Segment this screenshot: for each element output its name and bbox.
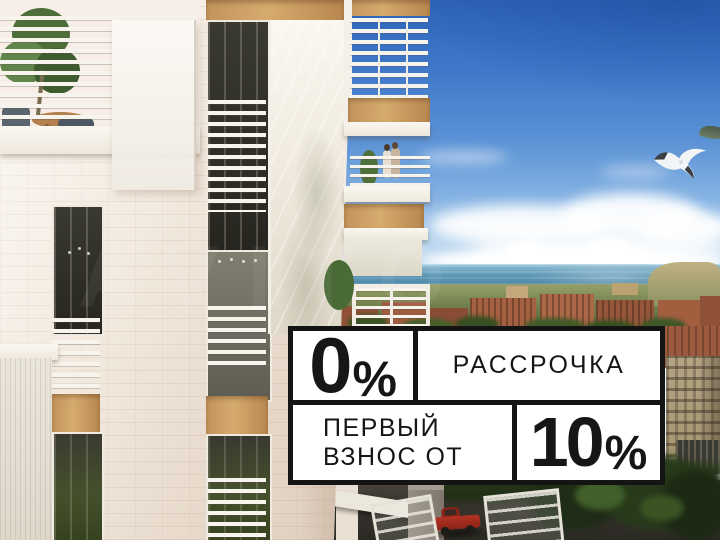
balcony-fascia [344, 122, 430, 136]
window-railing [208, 478, 266, 540]
person-head [392, 142, 398, 149]
cloud [505, 242, 545, 260]
balcony-fascia [344, 228, 428, 240]
cloud [418, 150, 508, 164]
glass-band [344, 240, 422, 276]
wood-panel [206, 396, 268, 436]
cloud [585, 238, 633, 258]
first-payment-label: ПЕРВЫЙ ВЗНОС ОТ [323, 414, 463, 471]
promo-row-first-payment: ПЕРВЫЙ ВЗНОС ОТ 10 % [293, 405, 660, 480]
first-payment-label-line2: ВЗНОС ОТ [323, 443, 463, 472]
first-payment-label-line1: ПЕРВЫЙ [323, 414, 463, 443]
window-railing [208, 306, 266, 368]
first-payment-percent-sign: % [605, 435, 648, 472]
pendant-light [254, 259, 257, 262]
protruding-balcony-people [344, 142, 430, 204]
truck-window [444, 509, 456, 516]
promo-cell-zero-percent: 0 % [293, 331, 413, 400]
roller-shade-panel [112, 20, 196, 190]
installment-rate-number: 0 [309, 335, 350, 396]
balcony-wood-ceiling [344, 0, 430, 16]
pendant-light [230, 258, 233, 261]
ten-percent-value: 10 % [530, 415, 648, 470]
installment-rate-percent-sign: % [352, 360, 396, 399]
installment-label: РАССРОЧКА [453, 351, 626, 380]
balcony-slab [344, 186, 430, 202]
promo-row-installment: 0 % РАССРОЧКА [293, 331, 660, 400]
promo-cell-first-payment-label: ПЕРВЫЙ ВЗНОС ОТ [293, 405, 512, 480]
promo-cell-ten-percent: 10 % [517, 405, 660, 480]
railing-post [378, 18, 380, 102]
protruding-balcony-upper [344, 0, 430, 140]
window [52, 205, 104, 336]
city-building [612, 283, 638, 295]
interior-light [68, 251, 71, 254]
railing-post [406, 18, 408, 102]
wood-header [206, 0, 344, 22]
pendant-light [218, 260, 221, 263]
promo-cell-installment-label: РАССРОЧКА [418, 331, 660, 400]
window-railing [52, 318, 100, 396]
person-head [384, 144, 390, 151]
pendant-light [242, 260, 245, 263]
city-building [506, 286, 528, 298]
first-payment-number: 10 [530, 415, 602, 470]
interior-light [87, 252, 90, 255]
wood-panel [52, 394, 100, 434]
window [52, 432, 104, 540]
balcony-screen [0, 358, 52, 540]
window-railing [208, 100, 266, 212]
tree-highlight [640, 495, 684, 521]
interior-light [78, 247, 81, 250]
real-estate-ad-image: AVITO 0 % РАССРОЧКА ПЕРВЫЙ ВЗНОС ОТ [0, 0, 720, 540]
pergola-frame [483, 488, 565, 540]
balcony-railing [350, 156, 430, 190]
shrub [324, 260, 354, 310]
protruding-balcony-lower [344, 204, 432, 334]
promo-overlay: 0 % РАССРОЧКА ПЕРВЫЙ ВЗНОС ОТ 10 % [288, 326, 665, 485]
pickup-truck [433, 503, 481, 538]
zero-percent-value: 0 % [309, 335, 397, 396]
balcony-railing [350, 18, 428, 102]
